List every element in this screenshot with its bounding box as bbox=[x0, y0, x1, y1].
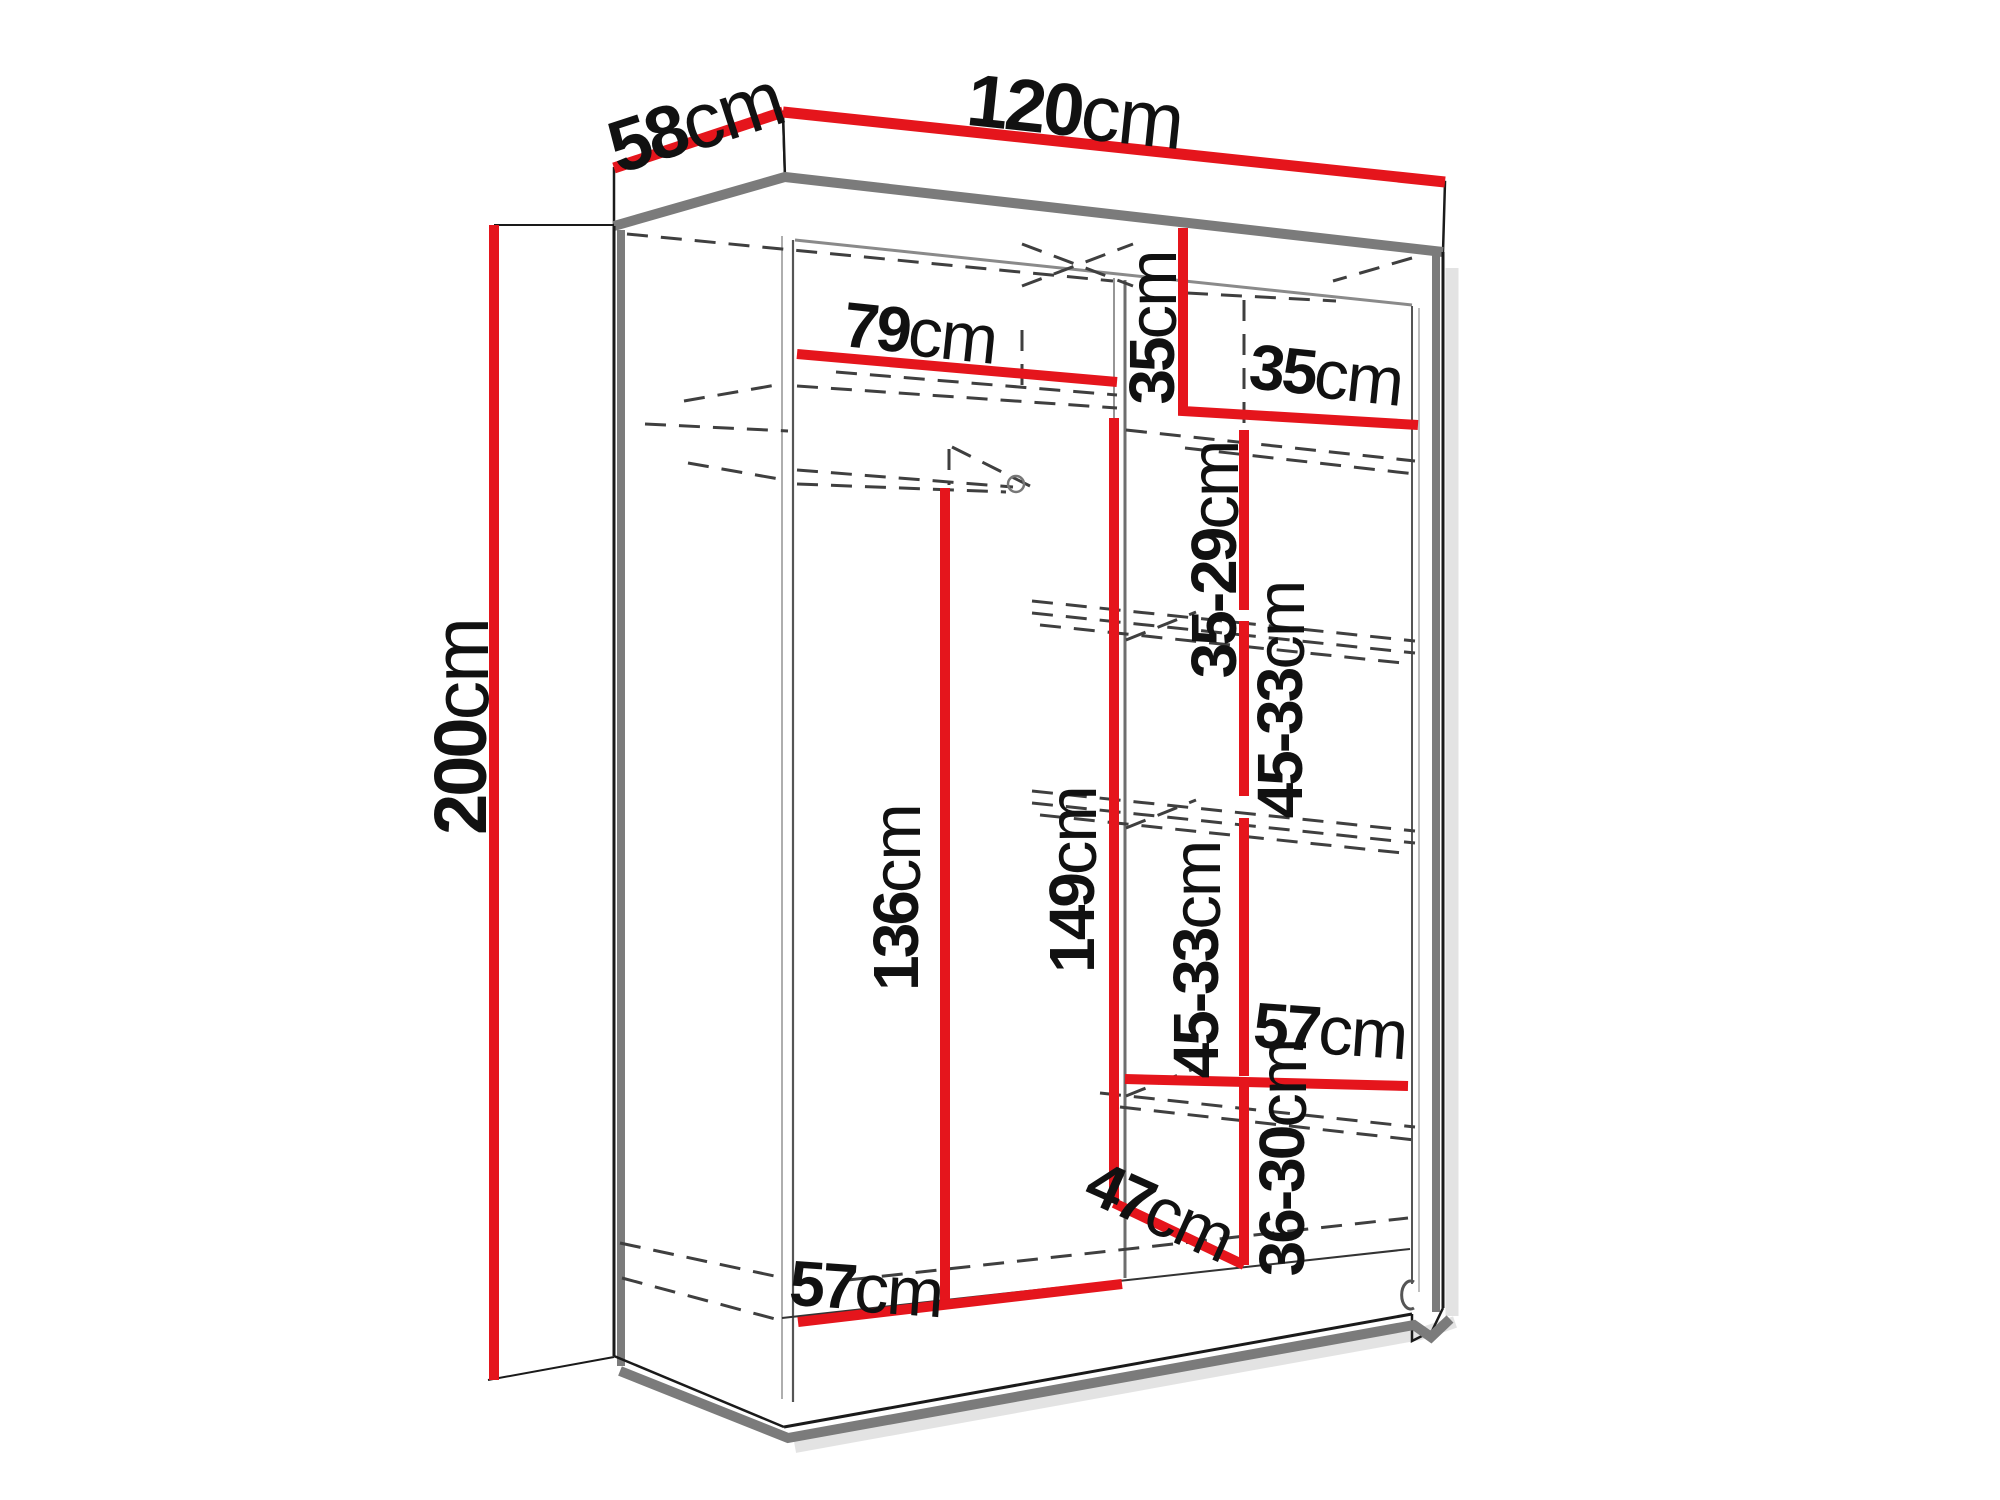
dim-top-shelf-height-label: 35cm bbox=[1114, 251, 1191, 404]
dim-hanging-height-label: 136cm bbox=[858, 805, 935, 991]
dim-shelf-spacing-2-label: 45-33cm bbox=[1242, 582, 1319, 819]
dim-middle-height-label: 149cm bbox=[1034, 787, 1111, 973]
dim-bottom-depth-label: 47cm bbox=[1074, 1144, 1245, 1277]
base-bottom-edge bbox=[784, 1314, 1412, 1427]
caster-detail bbox=[1402, 1281, 1414, 1309]
dim-floor-depth-label: 57cm bbox=[787, 1244, 945, 1331]
side-panel-bottom-edge bbox=[614, 1356, 784, 1427]
dim-right-section-width-label: 35cm bbox=[1246, 328, 1406, 421]
diagram-canvas: 58cm 120cm 200cm 79cm 35cm 35cm 35-29cm … bbox=[0, 0, 2000, 1500]
dim-height-tick-bottom bbox=[488, 1357, 614, 1380]
dim-lower-spacing-label: 36-30cm bbox=[1244, 1040, 1321, 1277]
dim-height-label: 200cm bbox=[416, 619, 505, 835]
dim-shelf-spacing-3-label: 45-33cm bbox=[1158, 842, 1235, 1079]
dimension-labels: 58cm 120cm 200cm 79cm 35cm 35cm 35-29cm … bbox=[416, 52, 1410, 1332]
base-shadow bbox=[620, 1319, 1450, 1438]
wardrobe-dimension-diagram: 58cm 120cm 200cm 79cm 35cm 35cm 35-29cm … bbox=[0, 0, 2000, 1500]
